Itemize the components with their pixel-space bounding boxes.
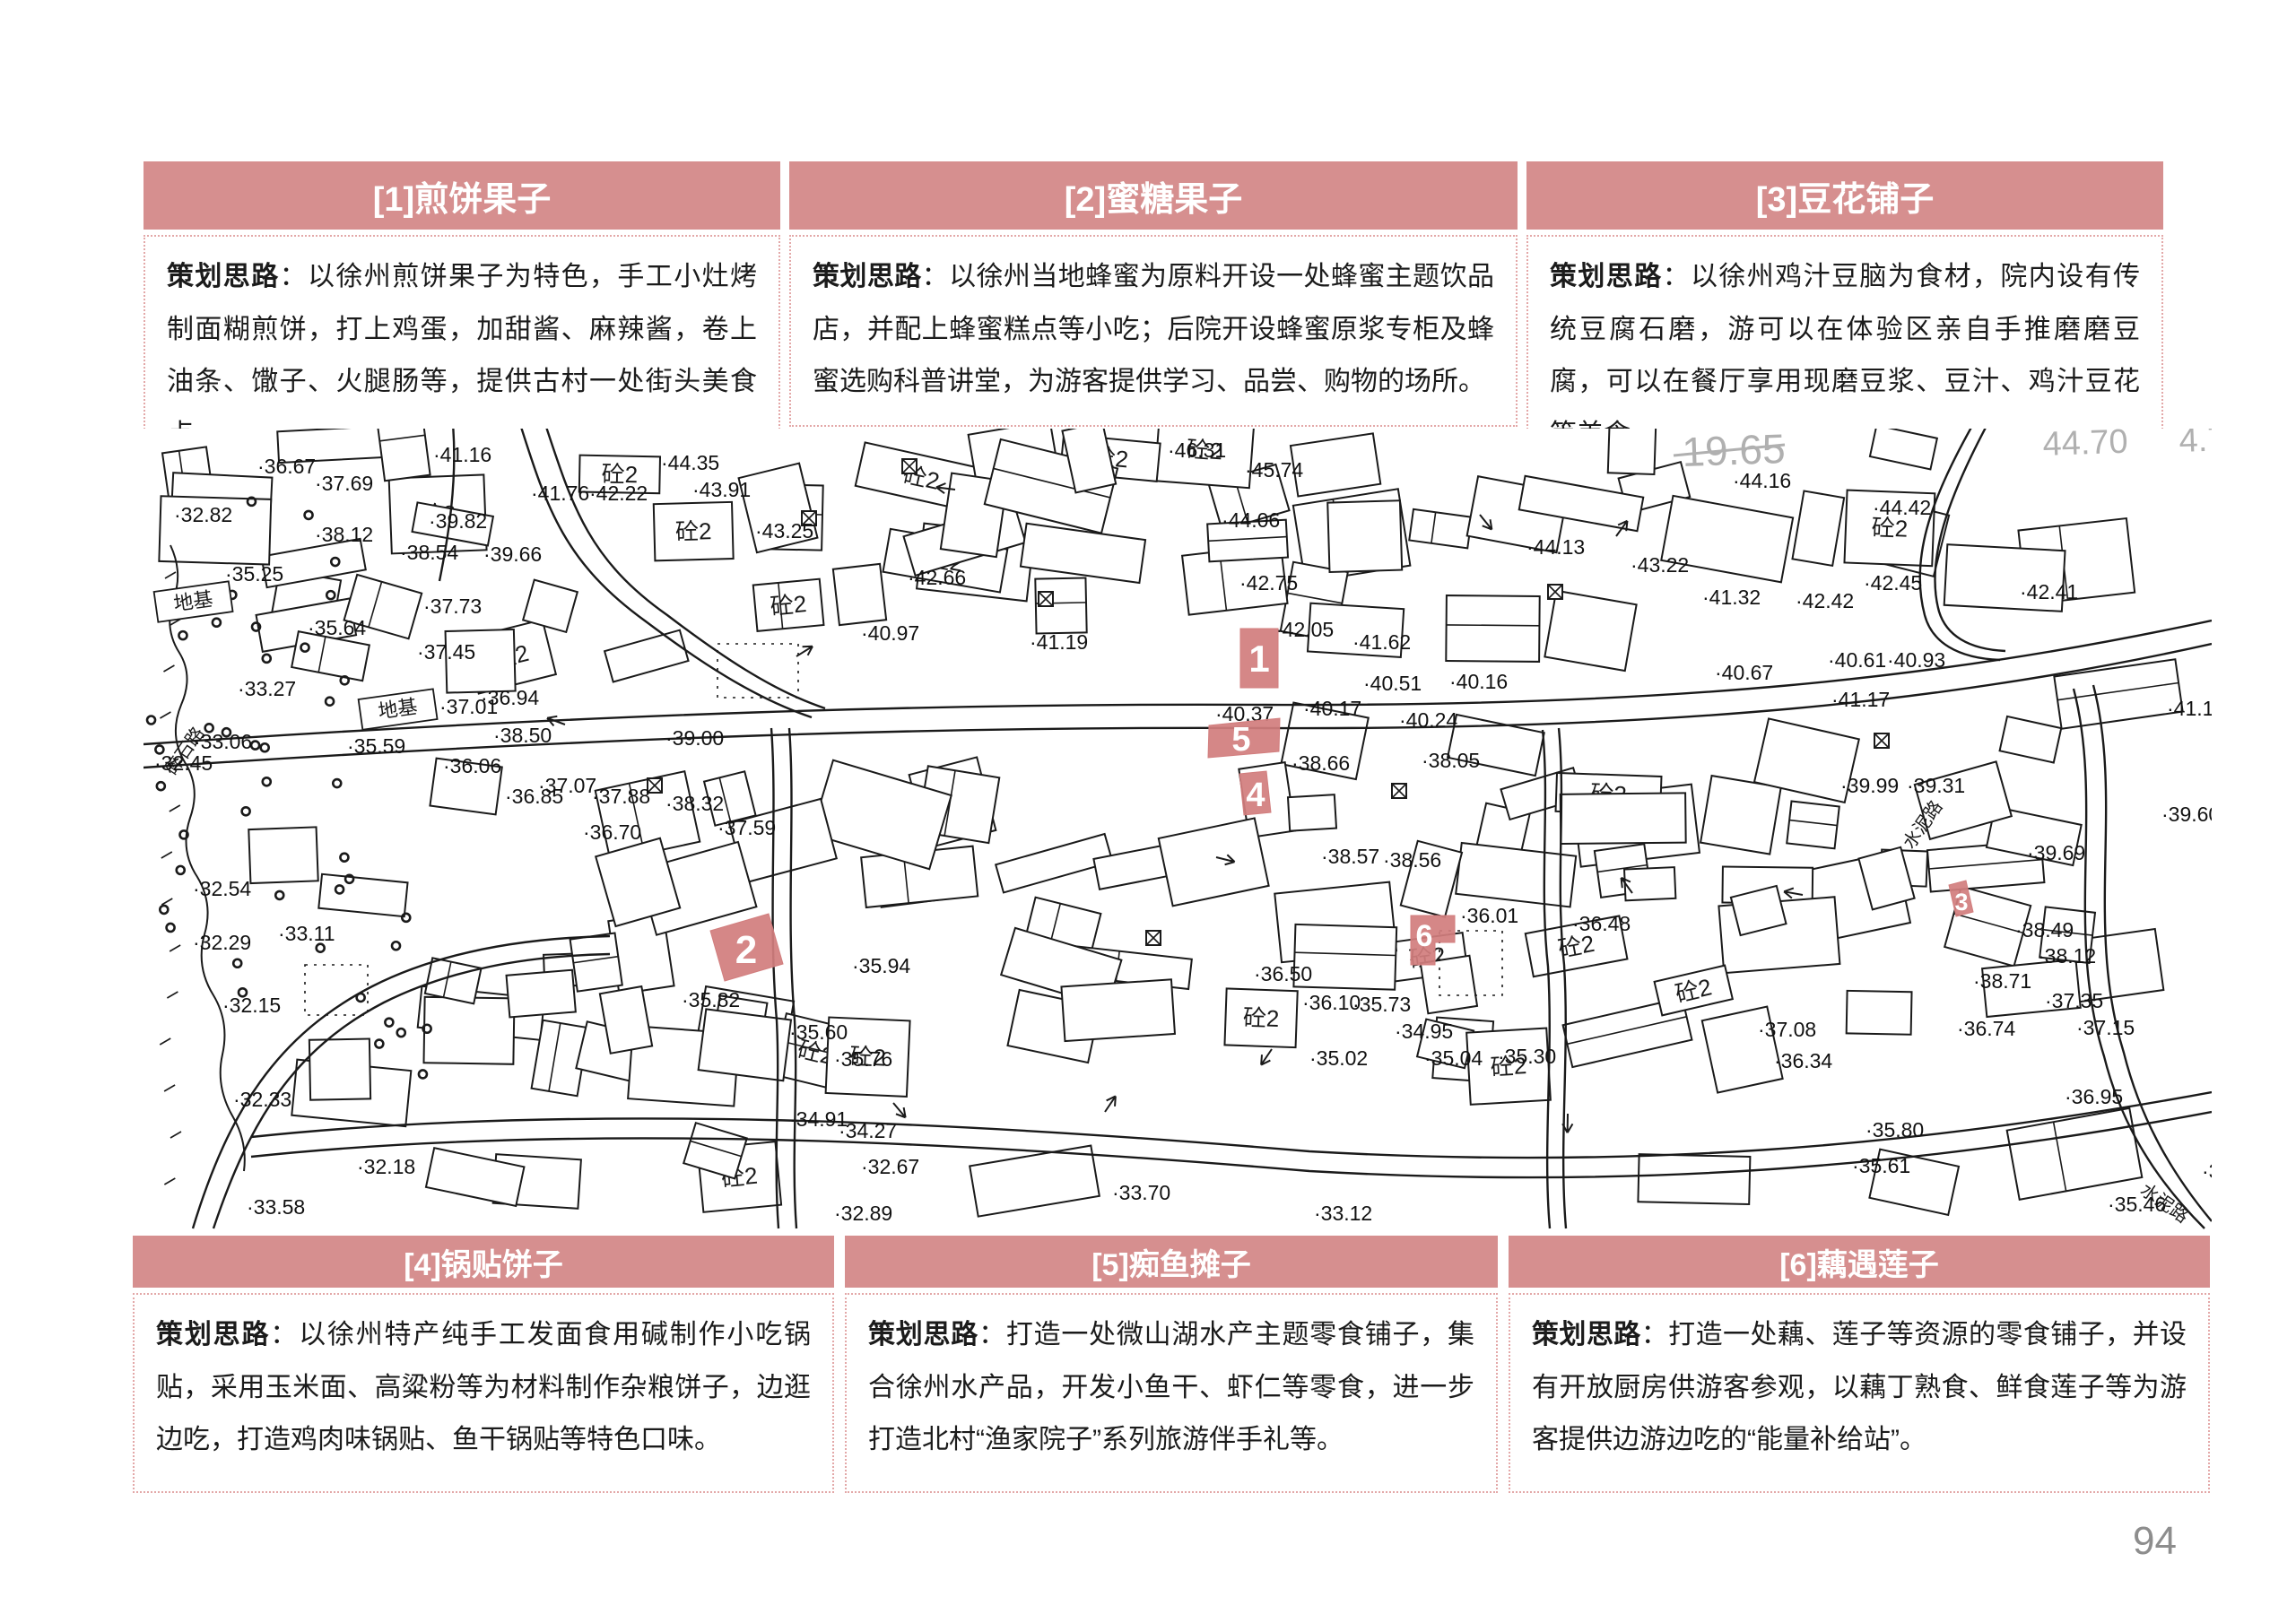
svg-text:·36.34: ·36.34 [1774, 1049, 1832, 1072]
card-6-text: 策划思路：打造一处藕、莲子等资源的零食铺子，并设有开放厨房供游客参观，以藕丁熟食… [1509, 1293, 2210, 1493]
svg-text:·36.50: ·36.50 [1254, 962, 1312, 985]
svg-text:·32.15: ·32.15 [222, 994, 281, 1017]
svg-text:·33.27: ·33.27 [238, 677, 296, 700]
svg-text:·38.57: ·38.57 [1321, 845, 1379, 868]
svg-text:·33.12: ·33.12 [1314, 1202, 1372, 1225]
svg-text:44.70: 44.70 [2042, 429, 2129, 464]
svg-text:·35.80: ·35.80 [1865, 1118, 1924, 1141]
svg-text:·40.97: ·40.97 [861, 621, 919, 645]
svg-text:·41.76: ·41.76 [531, 482, 589, 505]
svg-text:·35.02: ·35.02 [1309, 1046, 1368, 1070]
svg-text:砼2: 砼2 [675, 517, 712, 545]
svg-text:·39.82: ·39.82 [429, 509, 487, 533]
svg-text:砼2: 砼2 [770, 590, 808, 621]
svg-text:·39.66: ·39.66 [483, 542, 542, 566]
svg-text:·37.07: ·37.07 [538, 774, 596, 797]
svg-text:·38.32: ·38.32 [665, 792, 724, 815]
svg-text:·41.16: ·41.16 [433, 443, 491, 466]
svg-text:·42.42: ·42.42 [1796, 589, 1854, 612]
svg-text:·36.74: ·36.74 [1957, 1017, 2015, 1040]
svg-text:·35.94: ·35.94 [852, 954, 910, 977]
svg-text:·34.27: ·34.27 [839, 1119, 897, 1142]
card-4-text: 策划思路：以徐州特产纯手工发面食用碱制作小吃锅贴，采用玉米面、高粱粉等为材料制作… [133, 1293, 834, 1493]
svg-text:·36.67: ·36.67 [257, 455, 316, 478]
svg-text:·45.74: ·45.74 [1245, 458, 1303, 482]
map-marker-label-4: 4 [1246, 777, 1265, 814]
svg-text:·35.04: ·35.04 [1424, 1046, 1483, 1070]
svg-text:·41.17: ·41.17 [1831, 688, 1890, 711]
map-marker-label-3: 3 [1954, 889, 1968, 916]
svg-text:·32.67: ·32.67 [861, 1155, 919, 1178]
svg-text:·32.82: ·32.82 [174, 503, 232, 526]
village-survey-map: 砼2砼2砼2砼2砼2砼2砼2砼2砼2砼2砼2砼2砼2砼2砼2砼2砼2砼2砼2地基… [143, 429, 2212, 1230]
card-2-text: 策划思路：以徐州当地蜂蜜为原料开设一处蜂蜜主题饮品店，并配上蜂蜜糕点等小吃；后院… [789, 235, 1518, 427]
svg-text:·41.15: ·41.15 [2167, 697, 2212, 720]
svg-text:·34.95: ·34.95 [1395, 1020, 1453, 1043]
svg-text:·44.06: ·44.06 [1222, 508, 1280, 532]
card-6-lead: 策划思路 [1532, 1320, 1641, 1350]
card-2-lead: 策划思路 [813, 262, 922, 291]
map-marker-label-6: 6 [1416, 919, 1433, 953]
svg-text:·39.99: ·39.99 [1840, 774, 1899, 797]
svg-text:·40.93: ·40.93 [1887, 648, 1945, 672]
card-5: [5]痴鱼摊子 策划思路：打造一处微山湖水产主题零食铺子，集合徐州水产品，开发小… [845, 1236, 1498, 1493]
svg-text:·38.71: ·38.71 [1973, 969, 2031, 993]
svg-text:·35.46: ·35.46 [2108, 1193, 2166, 1216]
svg-text:·43.22: ·43.22 [1631, 553, 1689, 577]
svg-text:·41.32: ·41.32 [1702, 586, 1761, 609]
svg-text:4.72: 4.72 [2179, 429, 2212, 460]
svg-text:·40.24: ·40.24 [1399, 708, 1457, 732]
svg-text:·42.22: ·42.22 [589, 482, 648, 505]
svg-text:·39.69: ·39.69 [2027, 841, 2085, 864]
card-4-lead: 策划思路 [156, 1320, 270, 1350]
svg-text:·36.06: ·36.06 [443, 754, 501, 777]
card-1-title: [1]煎饼果子 [143, 161, 780, 230]
svg-text:·32.33: ·32.33 [233, 1088, 291, 1111]
svg-text:·35.82: ·35.82 [682, 988, 740, 1011]
card-5-text: 策划思路：打造一处微山湖水产主题零食铺子，集合徐州水产品，开发小鱼干、虾仁等零食… [845, 1293, 1498, 1493]
svg-text:·35.60: ·35.60 [789, 1020, 848, 1044]
card-1-lead: 策划思路 [167, 262, 280, 291]
svg-text:·44.35: ·44.35 [661, 451, 719, 474]
svg-text:·36.70: ·36.70 [583, 820, 641, 844]
card-5-title: [5]痴鱼摊子 [845, 1236, 1498, 1288]
svg-text:·40.16: ·40.16 [1449, 670, 1508, 693]
svg-text:·33.11: ·33.11 [278, 922, 335, 945]
card-6-title: [6]藕遇莲子 [1509, 1236, 2210, 1288]
svg-text:·36.82: ·36.82 [2202, 1159, 2212, 1183]
svg-text:·43.25: ·43.25 [755, 519, 813, 542]
card-6: [6]藕遇莲子 策划思路：打造一处藕、莲子等资源的零食铺子，并设有开放厨房供游客… [1509, 1236, 2210, 1493]
svg-text:·44.13: ·44.13 [1526, 535, 1585, 559]
bottom-section: [4]锅贴饼子 策划思路：以徐州特产纯手工发面食用碱制作小吃锅贴，采用玉米面、高… [133, 1236, 2210, 1493]
svg-text:·44.42: ·44.42 [1873, 496, 1931, 519]
svg-text:·37.59: ·37.59 [717, 816, 776, 839]
svg-text:·37.45: ·37.45 [417, 640, 475, 664]
svg-text:·37.35: ·37.35 [2045, 989, 2103, 1012]
svg-text:·32.54: ·32.54 [193, 877, 251, 900]
svg-text:·37.73: ·37.73 [423, 595, 482, 618]
svg-text:·42.66: ·42.66 [908, 566, 966, 589]
svg-text:·38.56: ·38.56 [1383, 848, 1441, 872]
svg-text:·41.19: ·41.19 [1030, 630, 1088, 654]
svg-text:·40.61: ·40.61 [1828, 648, 1886, 672]
svg-text:·42.41: ·42.41 [2020, 580, 2078, 603]
svg-text:·38.50: ·38.50 [493, 724, 552, 747]
svg-text:·46.31: ·46.31 [1168, 438, 1226, 462]
svg-text:·38.12: ·38.12 [2038, 944, 2096, 968]
document-page: [1]煎饼果子 策划思路：以徐州煎饼果子为特色，手工小灶烤制面糊煎饼，打上鸡蛋，… [0, 0, 2296, 1623]
svg-text:·37.01: ·37.01 [439, 695, 498, 718]
svg-text:·39.00: ·39.00 [665, 726, 724, 750]
svg-text:·36.95: ·36.95 [2065, 1085, 2123, 1108]
svg-text:·40.67: ·40.67 [1715, 661, 1773, 684]
card-3-lead: 策划思路 [1550, 262, 1663, 291]
svg-text:·38.49: ·38.49 [2015, 918, 2074, 942]
svg-text:·42.45: ·42.45 [1864, 571, 1922, 595]
svg-text:·43.91: ·43.91 [692, 478, 751, 501]
svg-text:·35.25: ·35.25 [225, 562, 283, 586]
map-marker-label-2: 2 [735, 928, 757, 972]
card-2-title: [2]蜜糖果子 [789, 161, 1518, 230]
card-5-lead: 策划思路 [868, 1320, 978, 1350]
svg-text:·35.73: ·35.73 [1352, 993, 1411, 1016]
svg-text:·35.76: ·35.76 [834, 1047, 892, 1071]
svg-text:·37.15: ·37.15 [2076, 1016, 2135, 1039]
svg-text:·33.58: ·33.58 [247, 1195, 305, 1219]
svg-text:·40.51: ·40.51 [1363, 672, 1422, 695]
map-marker-label-5: 5 [1231, 721, 1250, 759]
card-4-title: [4]锅贴饼子 [133, 1236, 834, 1288]
cadastral-map: 砼2砼2砼2砼2砼2砼2砼2砼2砼2砼2砼2砼2砼2砼2砼2砼2砼2砼2砼2地基… [143, 429, 2212, 1230]
svg-text:·37.08: ·37.08 [1758, 1018, 1816, 1041]
map-marker-label-1: 1 [1248, 638, 1269, 680]
svg-text:·33.06: ·33.06 [194, 730, 252, 753]
svg-text:·35.30: ·35.30 [1498, 1045, 1556, 1068]
svg-text:·35.59: ·35.59 [347, 734, 405, 758]
svg-text:·32.89: ·32.89 [834, 1202, 892, 1225]
page-number: 94 [2133, 1519, 2177, 1564]
card-3-title: [3]豆花铺子 [1526, 161, 2163, 230]
svg-text:·33.70: ·33.70 [1112, 1181, 1170, 1204]
svg-text:·38.66: ·38.66 [1291, 751, 1350, 775]
svg-text:·39.60: ·39.60 [2161, 803, 2212, 826]
svg-text:·38.05: ·38.05 [1422, 749, 1480, 772]
svg-text:·42.05: ·42.05 [1275, 618, 1334, 641]
svg-text:·35.64: ·35.64 [308, 616, 366, 639]
svg-text:·32.29: ·32.29 [193, 931, 251, 954]
svg-text:·40.17: ·40.17 [1303, 697, 1361, 720]
svg-text:·38.54: ·38.54 [400, 541, 458, 564]
svg-text:·38.12: ·38.12 [315, 523, 373, 546]
svg-text:·32.18: ·32.18 [357, 1155, 415, 1178]
svg-text:·39.31: ·39.31 [1907, 774, 1965, 797]
svg-text:·37.69: ·37.69 [315, 472, 373, 495]
svg-text:·35.61: ·35.61 [1852, 1154, 1910, 1177]
card-4: [4]锅贴饼子 策划思路：以徐州特产纯手工发面食用碱制作小吃锅贴，采用玉米面、高… [133, 1236, 834, 1493]
svg-text:·32.45: ·32.45 [154, 751, 213, 775]
svg-text:·36.01: ·36.01 [1460, 904, 1518, 927]
svg-text:·36.48: ·36.48 [1572, 912, 1631, 935]
svg-text:·41.62: ·41.62 [1352, 630, 1411, 654]
svg-text:·37.88: ·37.88 [592, 785, 650, 808]
svg-text:·42.75: ·42.75 [1239, 571, 1298, 595]
svg-text:砼2: 砼2 [1242, 1004, 1279, 1032]
